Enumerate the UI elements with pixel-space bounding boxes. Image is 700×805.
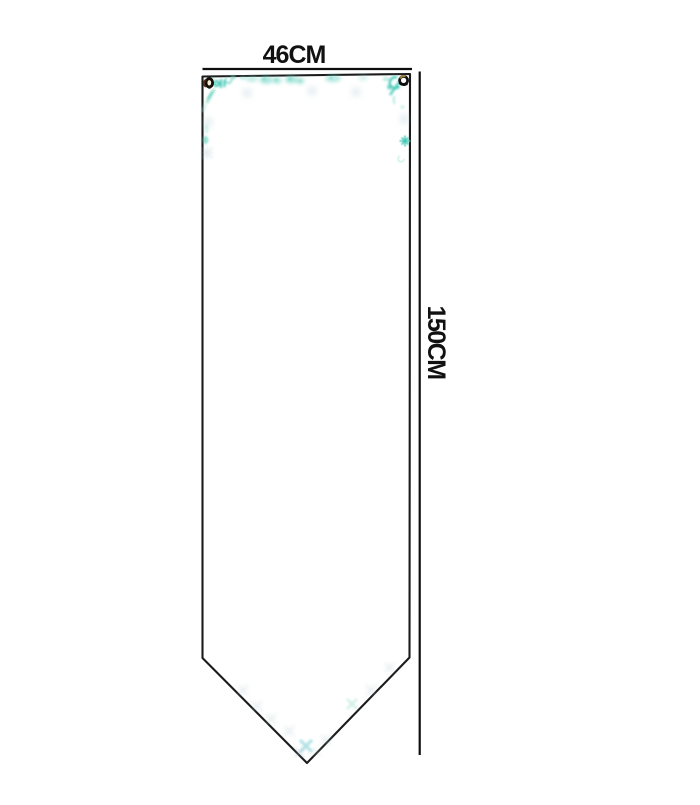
svg-text:150CM: 150CM xyxy=(422,305,450,379)
svg-text:46CM: 46CM xyxy=(263,41,326,69)
